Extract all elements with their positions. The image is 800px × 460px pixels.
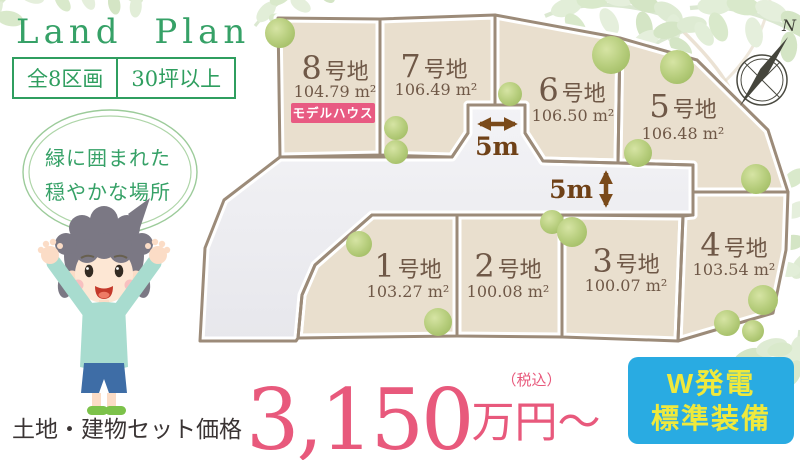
tree-icon — [346, 231, 372, 257]
plot-2-area: 100.08 m² — [467, 282, 550, 301]
tree-icon — [384, 116, 408, 140]
plot-5-area: 106.48 m² — [642, 124, 725, 143]
plot-4-area: 103.54 m² — [693, 260, 776, 279]
land-plan-flyer: 緑に囲まれた 穏やかな場所 — [0, 0, 800, 460]
tree-icon — [714, 310, 740, 336]
feature-line2: 標準装備 — [651, 401, 771, 436]
intro-circle-line2: 穏やかな場所 — [45, 180, 171, 204]
intro-circle-line1: 緑に囲まれた — [45, 146, 171, 170]
road-width-label-1: 5m — [475, 132, 519, 161]
feature-line1: W発電 — [667, 366, 755, 401]
feature-box: W発電 標準装備 — [628, 357, 794, 444]
tree-icon — [624, 139, 652, 167]
tree-icon — [424, 308, 452, 336]
price-line: 土地・建物セット価格 3,150 （税込） 万円〜 — [12, 362, 624, 454]
plot-8-area: 104.79 m² — [294, 82, 377, 101]
badge-row: 全8区画 30坪以上 — [12, 57, 236, 99]
plot-7-area: 106.49 m² — [395, 80, 478, 99]
tree-icon — [498, 82, 522, 106]
tree-icon — [748, 285, 778, 315]
page-title: Land Plan — [16, 12, 250, 52]
price-amount: 3,150 — [246, 388, 471, 454]
price-tax-note: （税込） — [471, 369, 600, 390]
site-map: 8号地 104.79 m² モデルハウス 7号地 106.49 m² 6号地 1… — [200, 15, 788, 342]
badge-total-plots: 全8区画 — [14, 59, 116, 97]
tree-icon — [741, 164, 771, 194]
price-prefix: 土地・建物セット価格 — [12, 410, 242, 444]
model-house-badge: モデルハウス — [291, 103, 375, 123]
tree-icon — [557, 217, 587, 247]
tree-icon — [384, 140, 408, 164]
north-label: N — [781, 16, 797, 35]
tree-icon — [592, 36, 630, 74]
price-unit: 万円〜 — [471, 388, 600, 450]
tree-icon — [742, 320, 764, 342]
road-width-label-2: 5m — [549, 175, 593, 204]
plot-3-area: 100.07 m² — [585, 276, 668, 295]
plot-1-area: 103.27 m² — [367, 282, 450, 301]
model-house-label: モデルハウス — [292, 106, 373, 121]
tree-icon — [660, 50, 694, 84]
tree-icon — [265, 18, 295, 48]
plot-6-area: 106.50 m² — [532, 106, 615, 125]
badge-min-size: 30坪以上 — [116, 59, 234, 97]
